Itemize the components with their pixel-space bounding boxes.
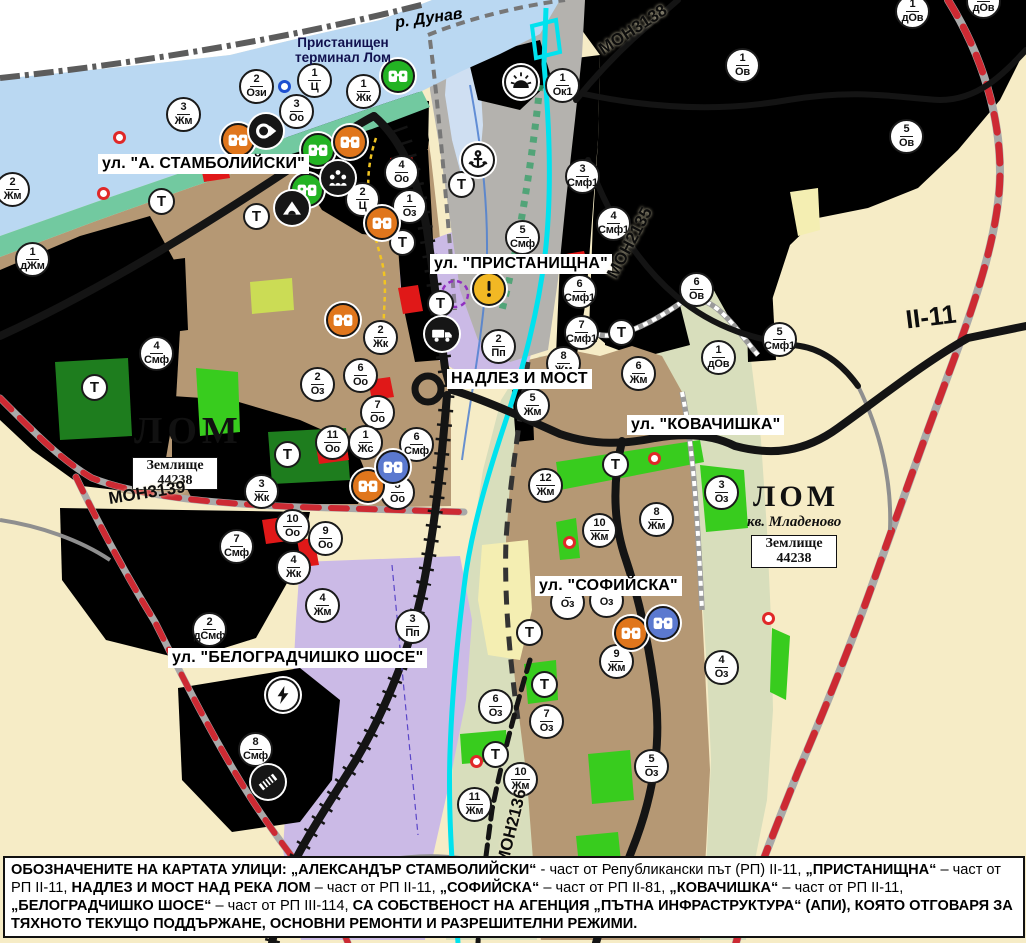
map-canvas[interactable]: 2Ози1Ц1Жк3Оо1Ок13Жм2Жм1дЖм4Оо2Ц1Оз1дОв1д… <box>0 0 1026 943</box>
footer-text-segment: – част от РП II-11, <box>311 880 440 896</box>
footer-text-segment: ОБОЗНАЧЕНИТЕ НА КАРТАТА УЛИЦИ: „АЛЕКСАНД… <box>11 862 536 878</box>
zoning-map-svg <box>0 0 1026 943</box>
footer-text-segment: НАДЛЕЗ И МОСТ НАД РЕКА ЛОМ <box>72 880 311 896</box>
footer-text-segment: - част от Републикански път (РП) II-11, <box>536 862 805 878</box>
footer-text-segment: – част от РП III-114, <box>211 898 352 914</box>
footer-text-segment: „ПРИСТАНИЩНА“ <box>805 862 936 878</box>
footer-text-segment: „БЕЛОГРАДЧИШКО ШОСЕ“ <box>11 898 211 914</box>
footer-text-segment: – част от РП II-81, <box>539 880 669 896</box>
footer-text-segment: „КОВАЧИШКА“ <box>669 880 778 896</box>
footer-text-segment: „СОФИЙСКА“ <box>440 880 540 896</box>
footer-text-segment: – част от РП II-11, <box>778 880 903 896</box>
footer-note: ОБОЗНАЧЕНИТЕ НА КАРТАТА УЛИЦИ: „АЛЕКСАНД… <box>3 856 1025 938</box>
